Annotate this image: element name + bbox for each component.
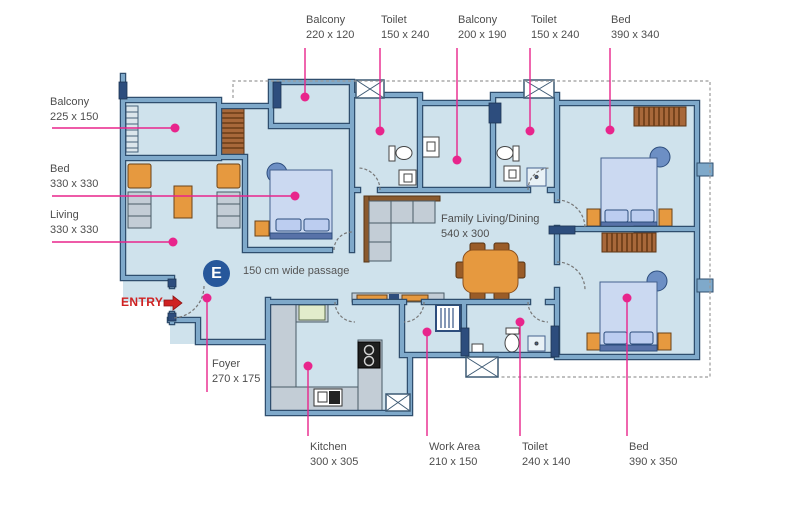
label-living: Living 330 x 330	[50, 208, 98, 238]
armchair-icon	[217, 164, 240, 188]
sofa-icon	[128, 192, 151, 228]
pillow-icon	[276, 219, 301, 231]
headboard	[270, 233, 332, 239]
room-name: Toilet	[381, 13, 429, 28]
tower-badge: E	[203, 260, 230, 287]
room-name: Kitchen	[310, 440, 358, 455]
room-name: Foyer	[212, 357, 260, 372]
room-dim: 540 x 300	[441, 227, 539, 242]
stove-icon	[358, 342, 380, 368]
wc-icon	[506, 328, 519, 334]
basin-icon	[422, 137, 439, 157]
side-table-icon	[587, 209, 600, 226]
room-name: Family Living/Dining	[441, 212, 539, 227]
label-bed-left: Bed 330 x 330	[50, 162, 98, 192]
room-dim: 240 x 140	[522, 455, 570, 470]
room-dim: 300 x 305	[310, 455, 358, 470]
l-sofa-icon	[369, 201, 435, 223]
label-family-living: Family Living/Dining 540 x 300	[441, 212, 539, 242]
wardrobe-icon	[634, 107, 686, 126]
label-foyer: Foyer 270 x 175	[212, 357, 260, 387]
room-name: Balcony	[50, 95, 98, 110]
coffee-table-icon	[174, 186, 192, 218]
shaft-icon	[524, 80, 554, 98]
sofa-back	[364, 196, 369, 262]
washer-icon	[436, 305, 460, 331]
side-table-icon	[659, 209, 672, 226]
wardrobe-icon	[221, 108, 244, 156]
room-dim: 330 x 330	[50, 177, 98, 192]
label-kitchen: Kitchen 300 x 305	[310, 440, 358, 470]
kitchen-sink-icon	[299, 305, 325, 320]
room-name: Balcony	[458, 13, 506, 28]
floorplan-drawing	[0, 0, 800, 512]
sink-icon	[399, 170, 416, 185]
label-passage: 150 cm wide passage	[243, 265, 349, 277]
room-dim: 150 x 240	[531, 28, 579, 43]
room-dim: 200 x 190	[458, 28, 506, 43]
label-balcony-top-left: Balcony 225 x 150	[50, 95, 98, 125]
room-name: Bed	[629, 440, 677, 455]
room-name: Work Area	[429, 440, 480, 455]
wc-icon	[505, 334, 519, 352]
room-name: Bed	[611, 13, 659, 28]
room-name: Toilet	[522, 440, 570, 455]
sofa-back	[364, 196, 440, 201]
wc-icon	[389, 146, 395, 161]
pillow-icon	[631, 210, 654, 222]
room-dim: 220 x 120	[306, 28, 354, 43]
room-balcony-small-top	[271, 82, 352, 126]
room-dim: 390 x 340	[611, 28, 659, 43]
label-toilet-1: Toilet 150 x 240	[381, 13, 429, 43]
headboard	[600, 345, 657, 351]
side-table-icon	[658, 333, 671, 350]
label-bed-bottom-right: Bed 390 x 350	[629, 440, 677, 470]
room-dim: 390 x 350	[629, 455, 677, 470]
pillow-icon	[304, 219, 329, 231]
label-work-area: Work Area 210 x 150	[429, 440, 480, 470]
room-name: Toilet	[531, 13, 579, 28]
oven-icon	[314, 389, 342, 406]
room-dim: 225 x 150	[50, 110, 98, 125]
dining-table-icon	[463, 250, 518, 293]
label-balcony-middle: Balcony 200 x 190	[458, 13, 506, 43]
sink-icon	[504, 166, 520, 181]
label-balcony-small-top: Balcony 220 x 120	[306, 13, 354, 43]
label-toilet-2: Toilet 150 x 240	[531, 13, 579, 43]
room-name: Living	[50, 208, 98, 223]
side-table-icon	[255, 221, 269, 236]
room-dim: 330 x 330	[50, 223, 98, 238]
sofa-icon	[217, 192, 240, 228]
label-toilet-3: Toilet 240 x 140	[522, 440, 570, 470]
room-toilet-2	[493, 95, 557, 190]
label-bed-top-right: Bed 390 x 340	[611, 13, 659, 43]
wc-icon	[396, 147, 412, 160]
pillow-icon	[605, 210, 628, 222]
side-table-icon	[587, 333, 600, 350]
pillow-icon	[604, 332, 627, 344]
wc-icon	[497, 147, 513, 160]
floorplan-page: Balcony 220 x 120 Toilet 150 x 240 Balco…	[0, 0, 800, 512]
shaft-icon	[386, 394, 410, 411]
balcony-vent-icon	[126, 106, 138, 152]
label-entry: ENTRY	[121, 296, 163, 309]
armchair-icon	[128, 164, 151, 188]
shaft-icon	[466, 357, 498, 377]
room-name: Bed	[50, 162, 98, 177]
room-dim: 270 x 175	[212, 372, 260, 387]
pillow-icon	[630, 332, 653, 344]
room-dim: 150 x 240	[381, 28, 429, 43]
wc-icon	[513, 146, 519, 161]
room-dim: 210 x 150	[429, 455, 480, 470]
room-name: Balcony	[306, 13, 354, 28]
